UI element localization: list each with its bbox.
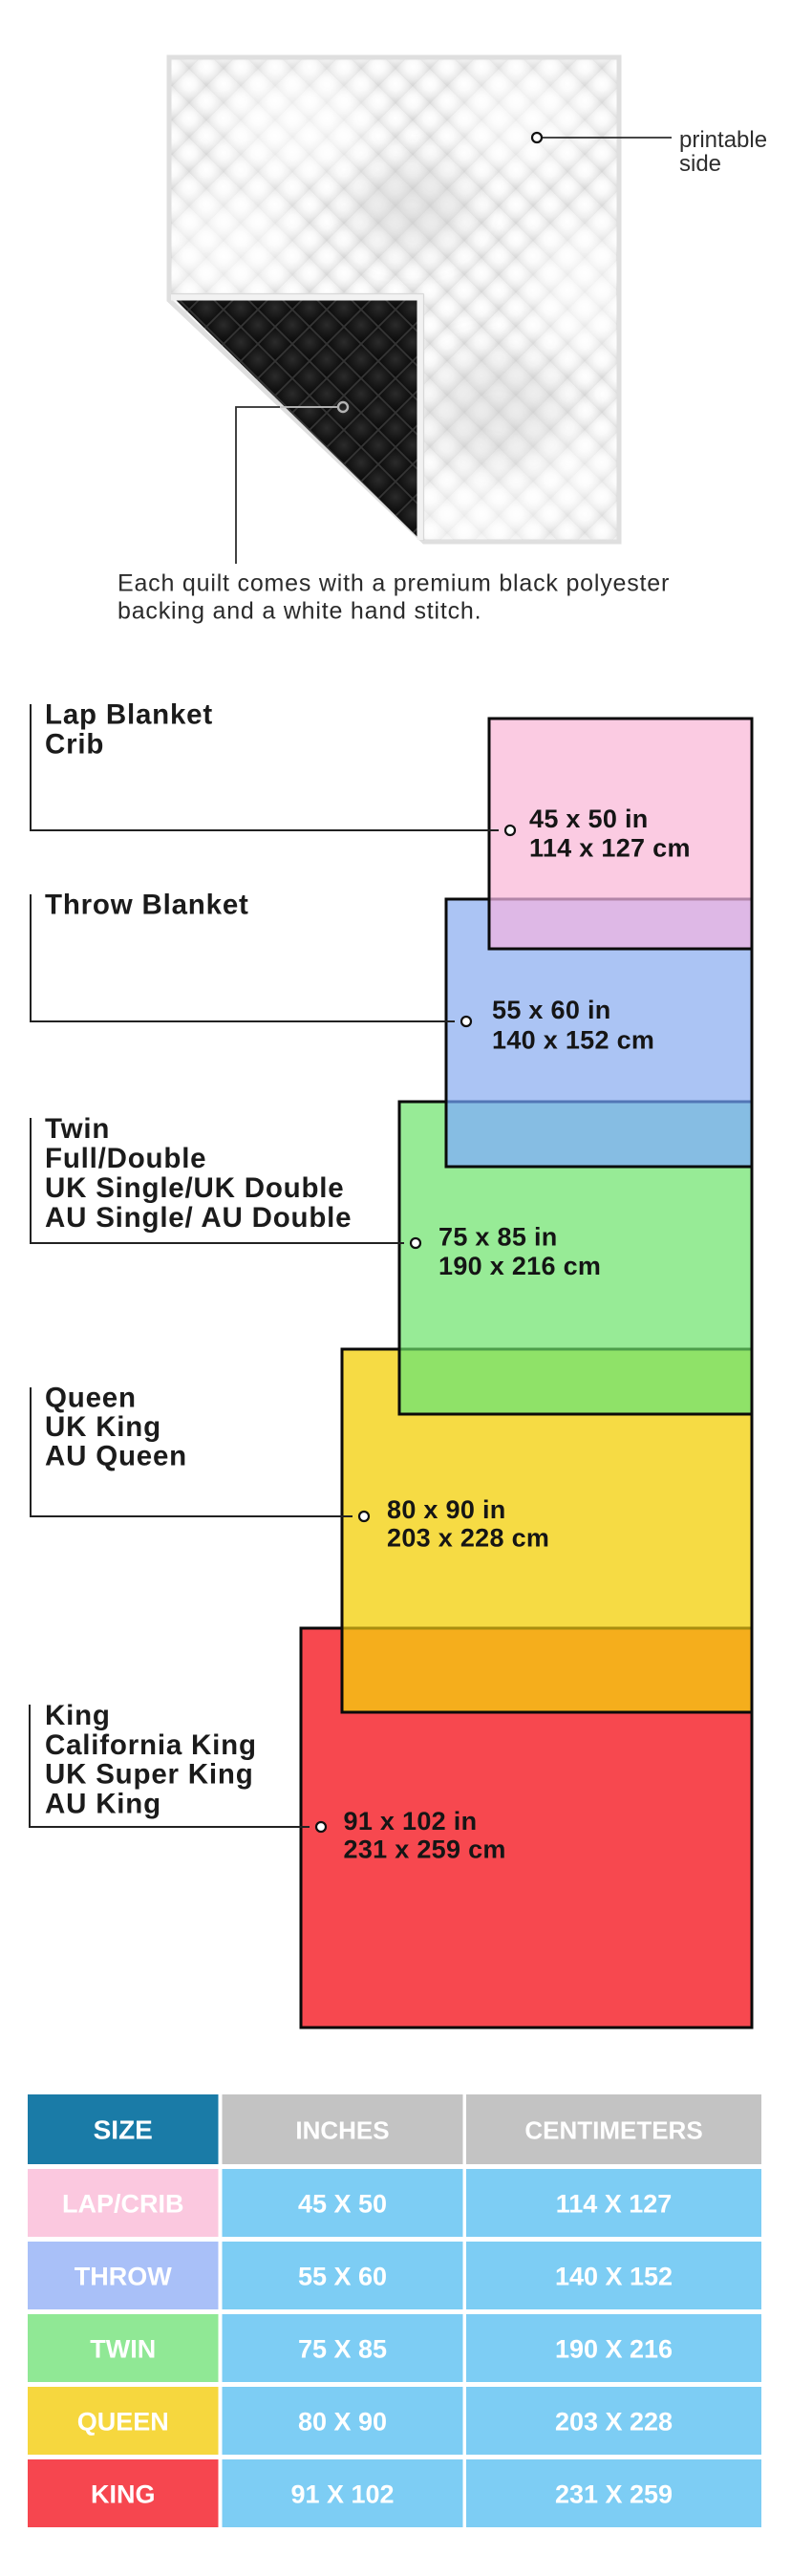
svg-text:King: King	[45, 1700, 111, 1731]
svg-text:203 x 228 cm: 203 x 228 cm	[387, 1524, 549, 1553]
svg-text:Queen: Queen	[45, 1383, 137, 1414]
svg-text:QUEEN: QUEEN	[77, 2408, 169, 2436]
svg-text:231 X 259: 231 X 259	[555, 2480, 673, 2509]
svg-text:printable: printable	[679, 127, 767, 153]
svg-text:TWIN: TWIN	[90, 2335, 156, 2364]
svg-text:AU Queen: AU Queen	[45, 1441, 187, 1472]
svg-text:INCHES: INCHES	[295, 2116, 389, 2145]
svg-text:55 x 60 in: 55 x 60 in	[492, 996, 611, 1024]
svg-text:203 X 228: 203 X 228	[555, 2408, 673, 2436]
svg-text:190 x 216 cm: 190 x 216 cm	[438, 1252, 601, 1280]
svg-text:UK King: UK King	[45, 1411, 161, 1443]
svg-text:190 X 216: 190 X 216	[555, 2335, 673, 2364]
svg-text:55 X 60: 55 X 60	[298, 2263, 387, 2291]
svg-text:CENTIMETERS: CENTIMETERS	[524, 2116, 702, 2145]
svg-text:80 x 90 in: 80 x 90 in	[387, 1495, 506, 1524]
svg-text:AU Single/ AU Double: AU Single/ AU Double	[45, 1202, 352, 1234]
svg-text:114 X 127: 114 X 127	[556, 2190, 673, 2219]
svg-text:45 x 50 in: 45 x 50 in	[529, 805, 649, 833]
svg-text:California King: California King	[45, 1729, 257, 1761]
svg-text:80 X 90: 80 X 90	[298, 2408, 387, 2436]
svg-text:Full/Double: Full/Double	[45, 1143, 206, 1174]
svg-text:Lap Blanket: Lap Blanket	[45, 699, 213, 731]
svg-text:Each quilt comes with a premiu: Each quilt comes with a premium black po…	[118, 570, 670, 597]
svg-text:231 x 259 cm: 231 x 259 cm	[344, 1835, 506, 1864]
svg-text:91 x 102 in: 91 x 102 in	[344, 1807, 478, 1835]
svg-text:140 x 152 cm: 140 x 152 cm	[492, 1026, 654, 1055]
svg-text:Throw Blanket: Throw Blanket	[45, 890, 249, 921]
svg-text:AU King: AU King	[45, 1789, 161, 1820]
svg-text:91 X 102: 91 X 102	[290, 2480, 394, 2509]
svg-text:Crib: Crib	[45, 729, 104, 761]
svg-text:KING: KING	[91, 2480, 156, 2509]
svg-text:SIZE: SIZE	[94, 2115, 153, 2145]
svg-text:140 X 152: 140 X 152	[555, 2263, 673, 2291]
svg-text:75 X 85: 75 X 85	[298, 2335, 387, 2364]
svg-text:75 x 85 in: 75 x 85 in	[438, 1223, 558, 1252]
svg-text:backing and a white hand stitc: backing and a white hand stitch.	[118, 598, 481, 625]
svg-text:side: side	[679, 151, 721, 177]
svg-text:45 X 50: 45 X 50	[298, 2190, 387, 2219]
svg-text:114 x 127 cm: 114 x 127 cm	[529, 834, 691, 863]
svg-text:LAP/CRIB: LAP/CRIB	[62, 2190, 184, 2219]
svg-text:UK Super King: UK Super King	[45, 1759, 254, 1791]
svg-text:Twin: Twin	[45, 1113, 110, 1145]
svg-text:THROW: THROW	[75, 2263, 172, 2291]
svg-text:UK Single/UK Double: UK Single/UK Double	[45, 1172, 344, 1204]
